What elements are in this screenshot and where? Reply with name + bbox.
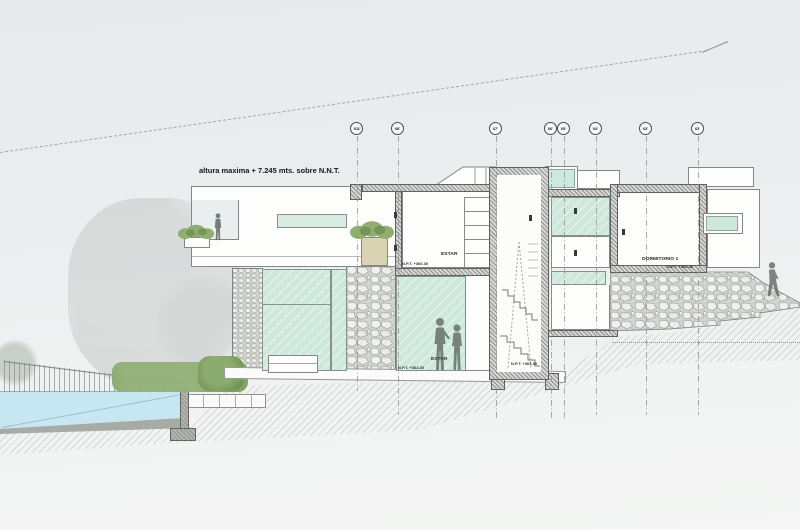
axis-label: X7': [493, 126, 498, 131]
grid-line-x8: [398, 136, 399, 415]
pool-wall-footing: [170, 428, 196, 441]
room-label-estar-lower: ESTAR: [431, 356, 447, 362]
dorm-left-wall: [610, 184, 618, 273]
max-height-annotation: altura maxima + 7.245 mts. sobre N.N.T.: [199, 166, 340, 175]
terrain-line-tick: [702, 41, 728, 53]
axis-bubble-x5: X5': [557, 122, 570, 135]
axis-label: X11': [353, 126, 360, 131]
grid-line-x5: [564, 136, 565, 420]
deck-furniture: [268, 355, 318, 373]
axis-bubble-x2: X2': [691, 122, 704, 135]
section-marker: [574, 250, 577, 256]
person-silhouette-terrace: [210, 213, 226, 241]
deck-furniture-line: [269, 363, 317, 364]
section-drawing-canvas: X11' X8' X7' X6' X5' X4' X3' X2' altura …: [0, 0, 800, 530]
band-window: [277, 214, 347, 228]
axis-label: X4': [593, 126, 598, 131]
axis-label: X2': [695, 126, 700, 131]
grid-line-x2: [698, 136, 699, 415]
person-silhouette-walking: [761, 254, 783, 306]
room-label-estar-upper: ESTAR: [441, 251, 457, 257]
grid-line-x6: [551, 136, 552, 420]
right-window-pane: [706, 216, 738, 231]
estar-ladder-shelf: [464, 197, 490, 267]
axis-bubble-x7: X7': [489, 122, 502, 135]
pool-deck-railing-band: [186, 394, 266, 408]
axis-bubble-x11: X11': [350, 122, 363, 135]
axis-label: X3': [643, 126, 648, 131]
section-marker: [394, 245, 397, 251]
section-marker: [622, 229, 625, 235]
bay-glass-upper: [551, 197, 610, 236]
grid-line-x11: [357, 136, 358, 391]
bay-wall-middle: [551, 236, 610, 268]
axis-label: X6': [548, 126, 553, 131]
axis-bubble-x6: X6': [544, 122, 557, 135]
pool-wall: [180, 389, 189, 431]
axis-bubble-x4: X4': [589, 122, 602, 135]
bay-wall-lower: [551, 285, 610, 330]
ground-dotted-line: [612, 342, 800, 343]
section-marker: [529, 215, 532, 221]
person-silhouette-pair: [431, 318, 467, 371]
room-label-dormitorio1: DORMITORIO 1: [642, 256, 678, 262]
planter-plants-left: [178, 222, 214, 240]
staircase: [498, 238, 540, 372]
floor-slab-bay: [548, 330, 618, 337]
roof-slab-estar: [362, 184, 498, 192]
floor-slab-estar: [395, 268, 498, 276]
level-label-dormitorio1: N.P.T. +366.40: [667, 264, 693, 269]
section-marker: [574, 208, 577, 214]
level-label-estar-upper: N.P.T. +366.30: [402, 261, 428, 266]
axis-label: X8': [395, 126, 400, 131]
grid-line-x7: [496, 136, 497, 420]
level-label-stair: N.P.T. +363.30: [511, 361, 537, 366]
stone-wall-left: [346, 266, 396, 378]
window-transom-line: [263, 304, 330, 305]
dorm-roof-slab: [610, 184, 707, 193]
grid-line-x3: [646, 136, 647, 415]
axis-bubble-x3: X3': [639, 122, 652, 135]
bay-glass-lower: [551, 271, 606, 285]
section-marker: [394, 212, 397, 218]
window-pane-narrow: [331, 269, 347, 371]
axis-label: X5': [561, 126, 566, 131]
skylight-pane: [548, 169, 575, 188]
axis-bubble-x8: X8': [391, 122, 404, 135]
wall-stub-hatch: [350, 184, 362, 200]
grid-line-x4: [596, 136, 597, 415]
planter-box-right: [361, 237, 388, 266]
level-label-estar-lower: N.P.T. +363.30: [398, 365, 424, 370]
natural-terrain-line: [0, 50, 707, 153]
